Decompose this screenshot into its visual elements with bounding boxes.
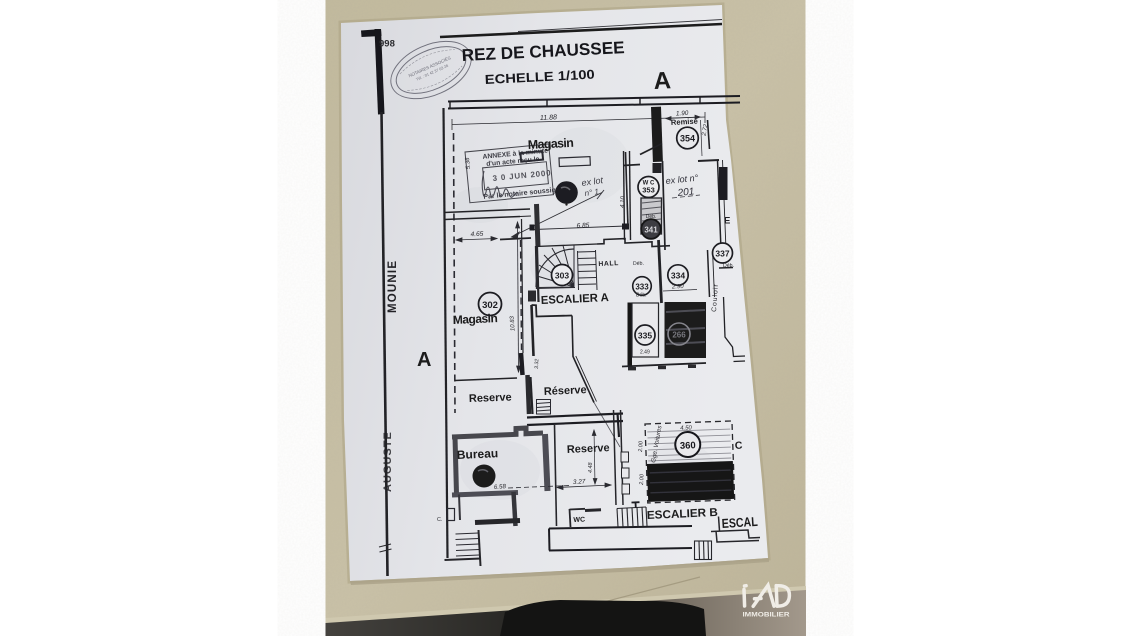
svg-text:5.38: 5.38 — [465, 157, 472, 170]
svg-text:Bureau: Bureau — [457, 446, 499, 462]
svg-text:335: 335 — [638, 331, 652, 341]
svg-text:302: 302 — [482, 300, 498, 311]
svg-text:6.58: 6.58 — [494, 483, 507, 491]
svg-text:Déb.: Déb. — [633, 261, 644, 267]
svg-text:Reserve: Reserve — [567, 442, 610, 456]
svg-text:998: 998 — [379, 39, 395, 50]
svg-text:3.32: 3.32 — [534, 359, 540, 369]
svg-text:Magasin: Magasin — [453, 311, 499, 327]
svg-text:Magasin: Magasin — [527, 136, 574, 152]
svg-text:C.: C. — [437, 517, 442, 523]
svg-text:MOUNIE: MOUNIE — [387, 260, 399, 313]
svg-text:Reserve: Reserve — [469, 392, 512, 405]
svg-text:6.85: 6.85 — [576, 222, 589, 230]
svg-text:ESCAL: ESCAL — [721, 514, 758, 531]
svg-text:4.50: 4.50 — [680, 425, 693, 431]
svg-text:201: 201 — [676, 186, 695, 199]
svg-text:2.00: 2.00 — [639, 473, 646, 486]
svg-text:C: C — [735, 440, 744, 452]
svg-text:360: 360 — [680, 440, 696, 452]
svg-text:4.65: 4.65 — [470, 231, 483, 239]
svg-text:A: A — [417, 349, 431, 371]
svg-text:266: 266 — [672, 331, 686, 340]
svg-text:4.48: 4.48 — [588, 463, 594, 474]
svg-text:11.88: 11.88 — [540, 114, 557, 122]
svg-text:4.10: 4.10 — [620, 195, 627, 208]
svg-text:333: 333 — [635, 283, 649, 292]
svg-text:AUGUSTE: AUGUSTE — [382, 431, 394, 492]
svg-text:10.83: 10.83 — [510, 315, 517, 331]
svg-text:354: 354 — [680, 134, 695, 144]
svg-text:E: E — [724, 216, 730, 227]
svg-text:341: 341 — [644, 226, 658, 235]
svg-text:353: 353 — [642, 186, 655, 195]
svg-text:IMMOBILIER: IMMOBILIER — [743, 611, 790, 618]
svg-text:2.49: 2.49 — [640, 350, 650, 356]
svg-text:3.27: 3.27 — [573, 478, 586, 486]
svg-text:334: 334 — [671, 271, 685, 281]
svg-text:HALL: HALL — [598, 260, 619, 268]
svg-text:Réserve: Réserve — [544, 384, 587, 398]
svg-text:303: 303 — [555, 271, 569, 281]
svg-text:1.90: 1.90 — [676, 110, 689, 118]
svg-text:2.00: 2.00 — [638, 440, 645, 453]
svg-text:WC: WC — [573, 516, 585, 524]
svg-text:Déb.: Déb. — [636, 293, 647, 299]
svg-text:2.90: 2.90 — [671, 284, 685, 291]
svg-text:337: 337 — [715, 249, 729, 259]
svg-text:A: A — [653, 67, 672, 95]
